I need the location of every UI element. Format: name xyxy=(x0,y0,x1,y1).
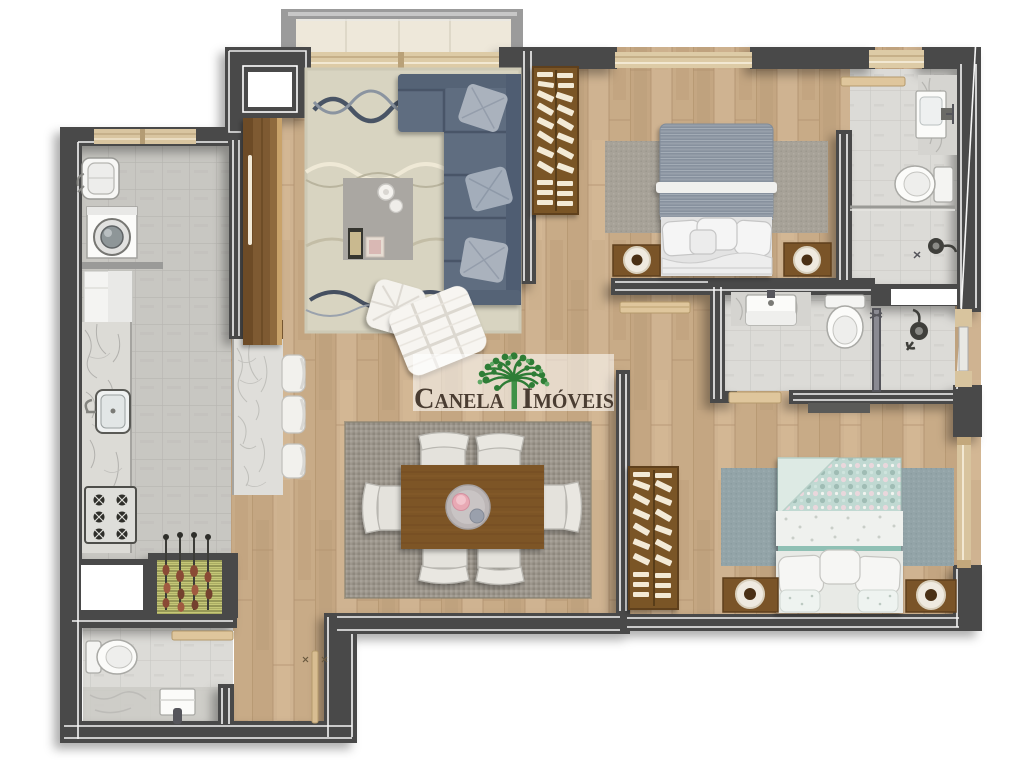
svg-text:Imóveis: Imóveis xyxy=(522,382,614,415)
svg-text:Canela: Canela xyxy=(414,382,505,415)
